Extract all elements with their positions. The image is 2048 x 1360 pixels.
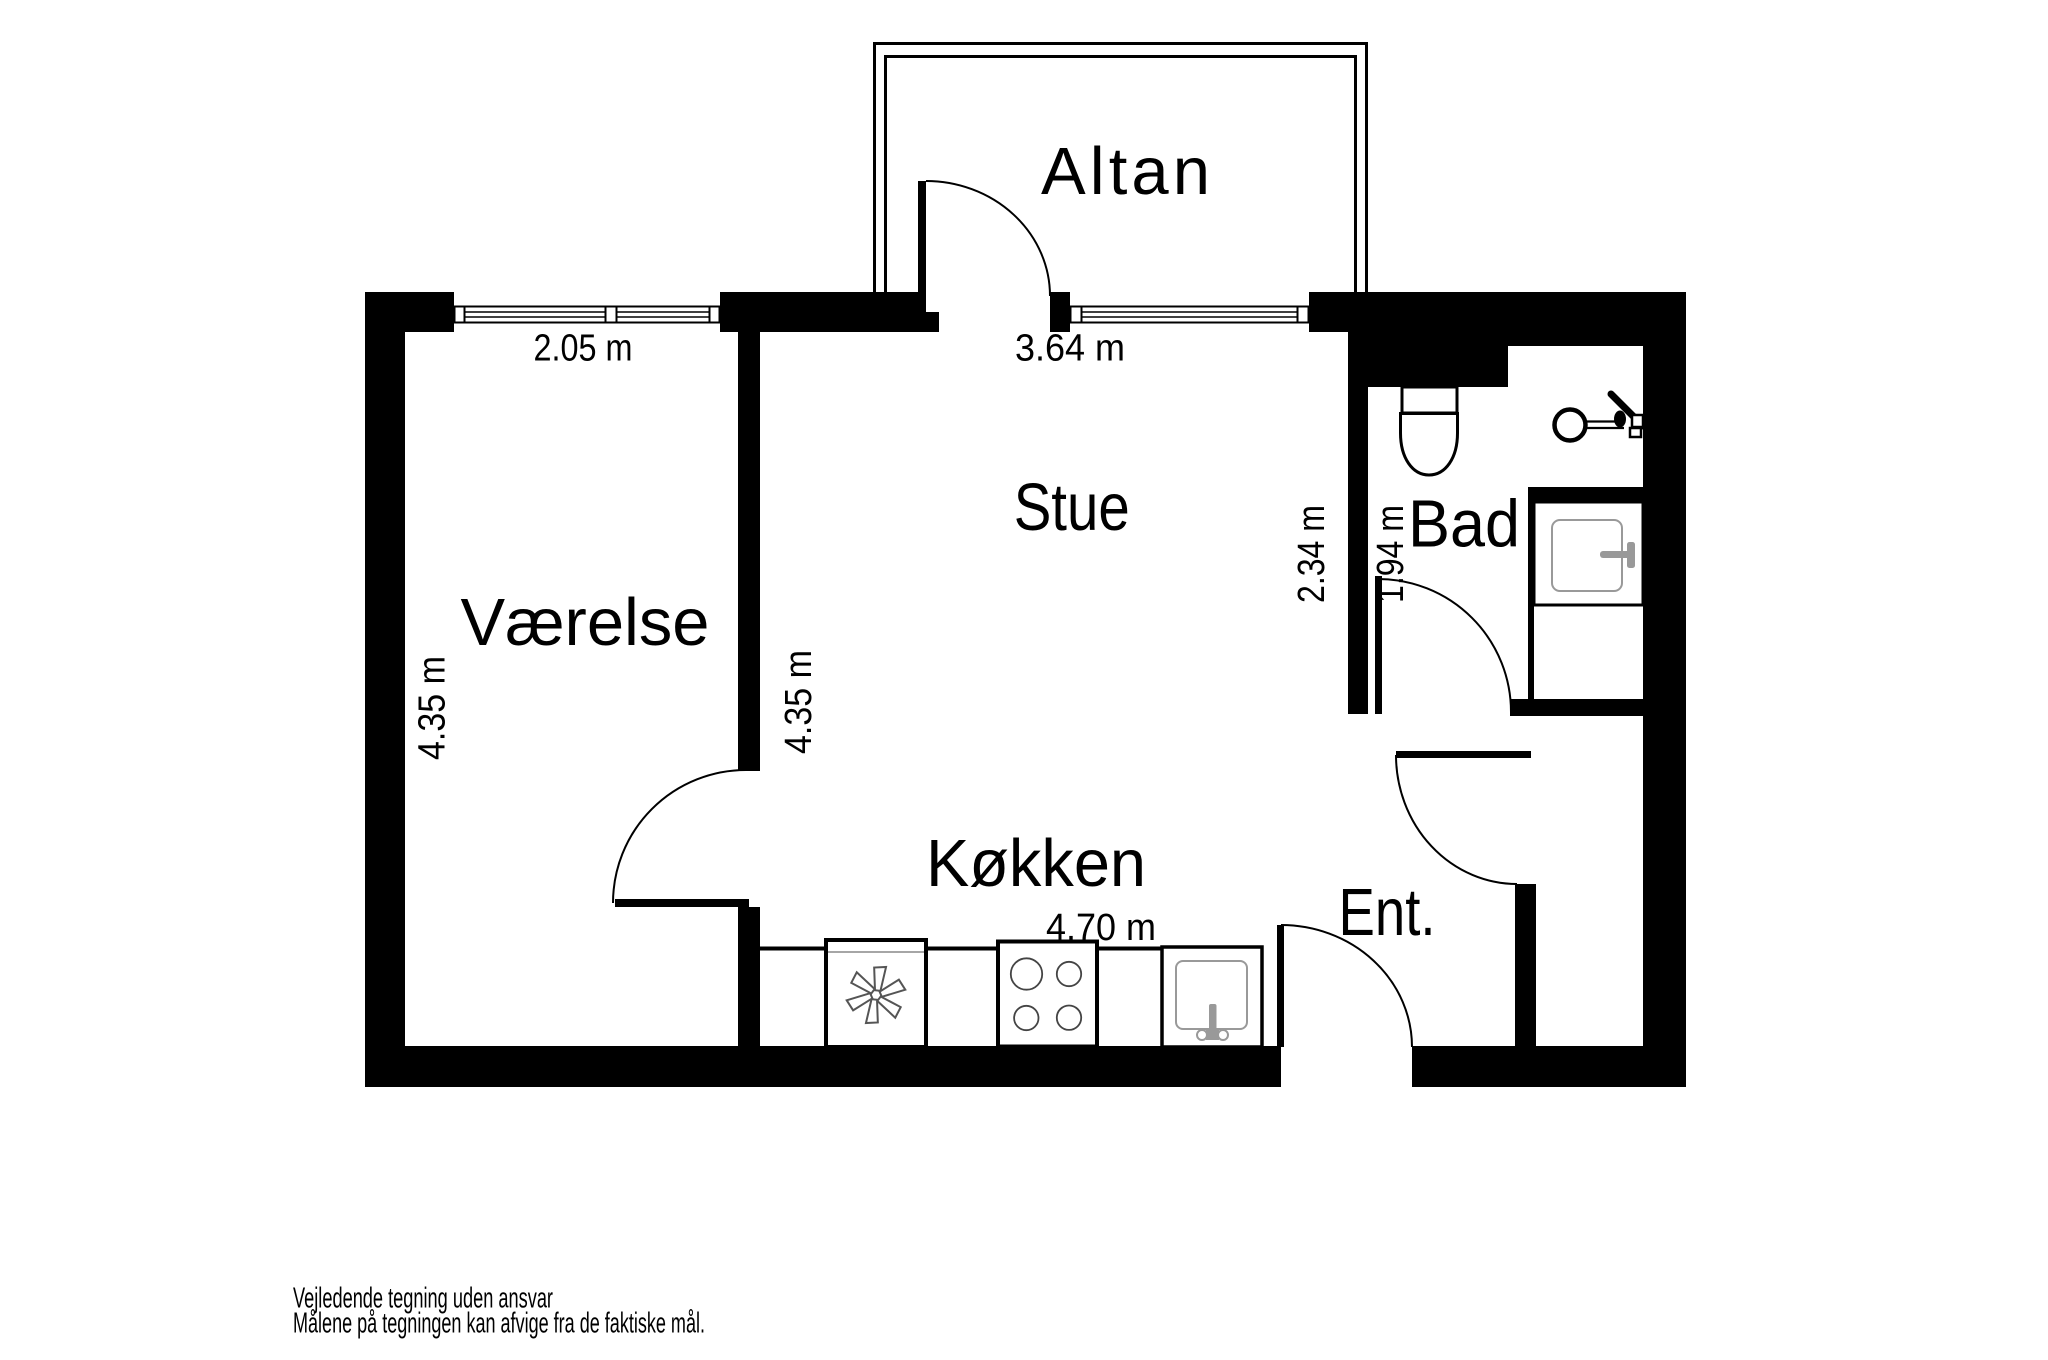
svg-text:4.70 m: 4.70 m xyxy=(1046,907,1156,949)
svg-text:3.64 m: 3.64 m xyxy=(1015,328,1125,370)
svg-text:1.94 m: 1.94 m xyxy=(1370,505,1412,603)
svg-text:Altan: Altan xyxy=(1041,134,1210,209)
svg-text:4.35 m: 4.35 m xyxy=(412,656,454,760)
svg-text:Bad: Bad xyxy=(1408,487,1520,562)
svg-text:Værelse: Værelse xyxy=(461,585,710,660)
svg-text:Køkken: Køkken xyxy=(926,826,1146,901)
svg-text:2.05 m: 2.05 m xyxy=(534,328,633,370)
svg-text:4.35 m: 4.35 m xyxy=(778,650,820,754)
svg-text:Stue: Stue xyxy=(1014,470,1130,545)
svg-text:2.34 m: 2.34 m xyxy=(1291,505,1333,603)
svg-text:Målene på tegningen kan afvige: Målene på tegningen kan afvige fra de fa… xyxy=(293,1307,705,1339)
svg-text:Ent.: Ent. xyxy=(1339,875,1436,950)
